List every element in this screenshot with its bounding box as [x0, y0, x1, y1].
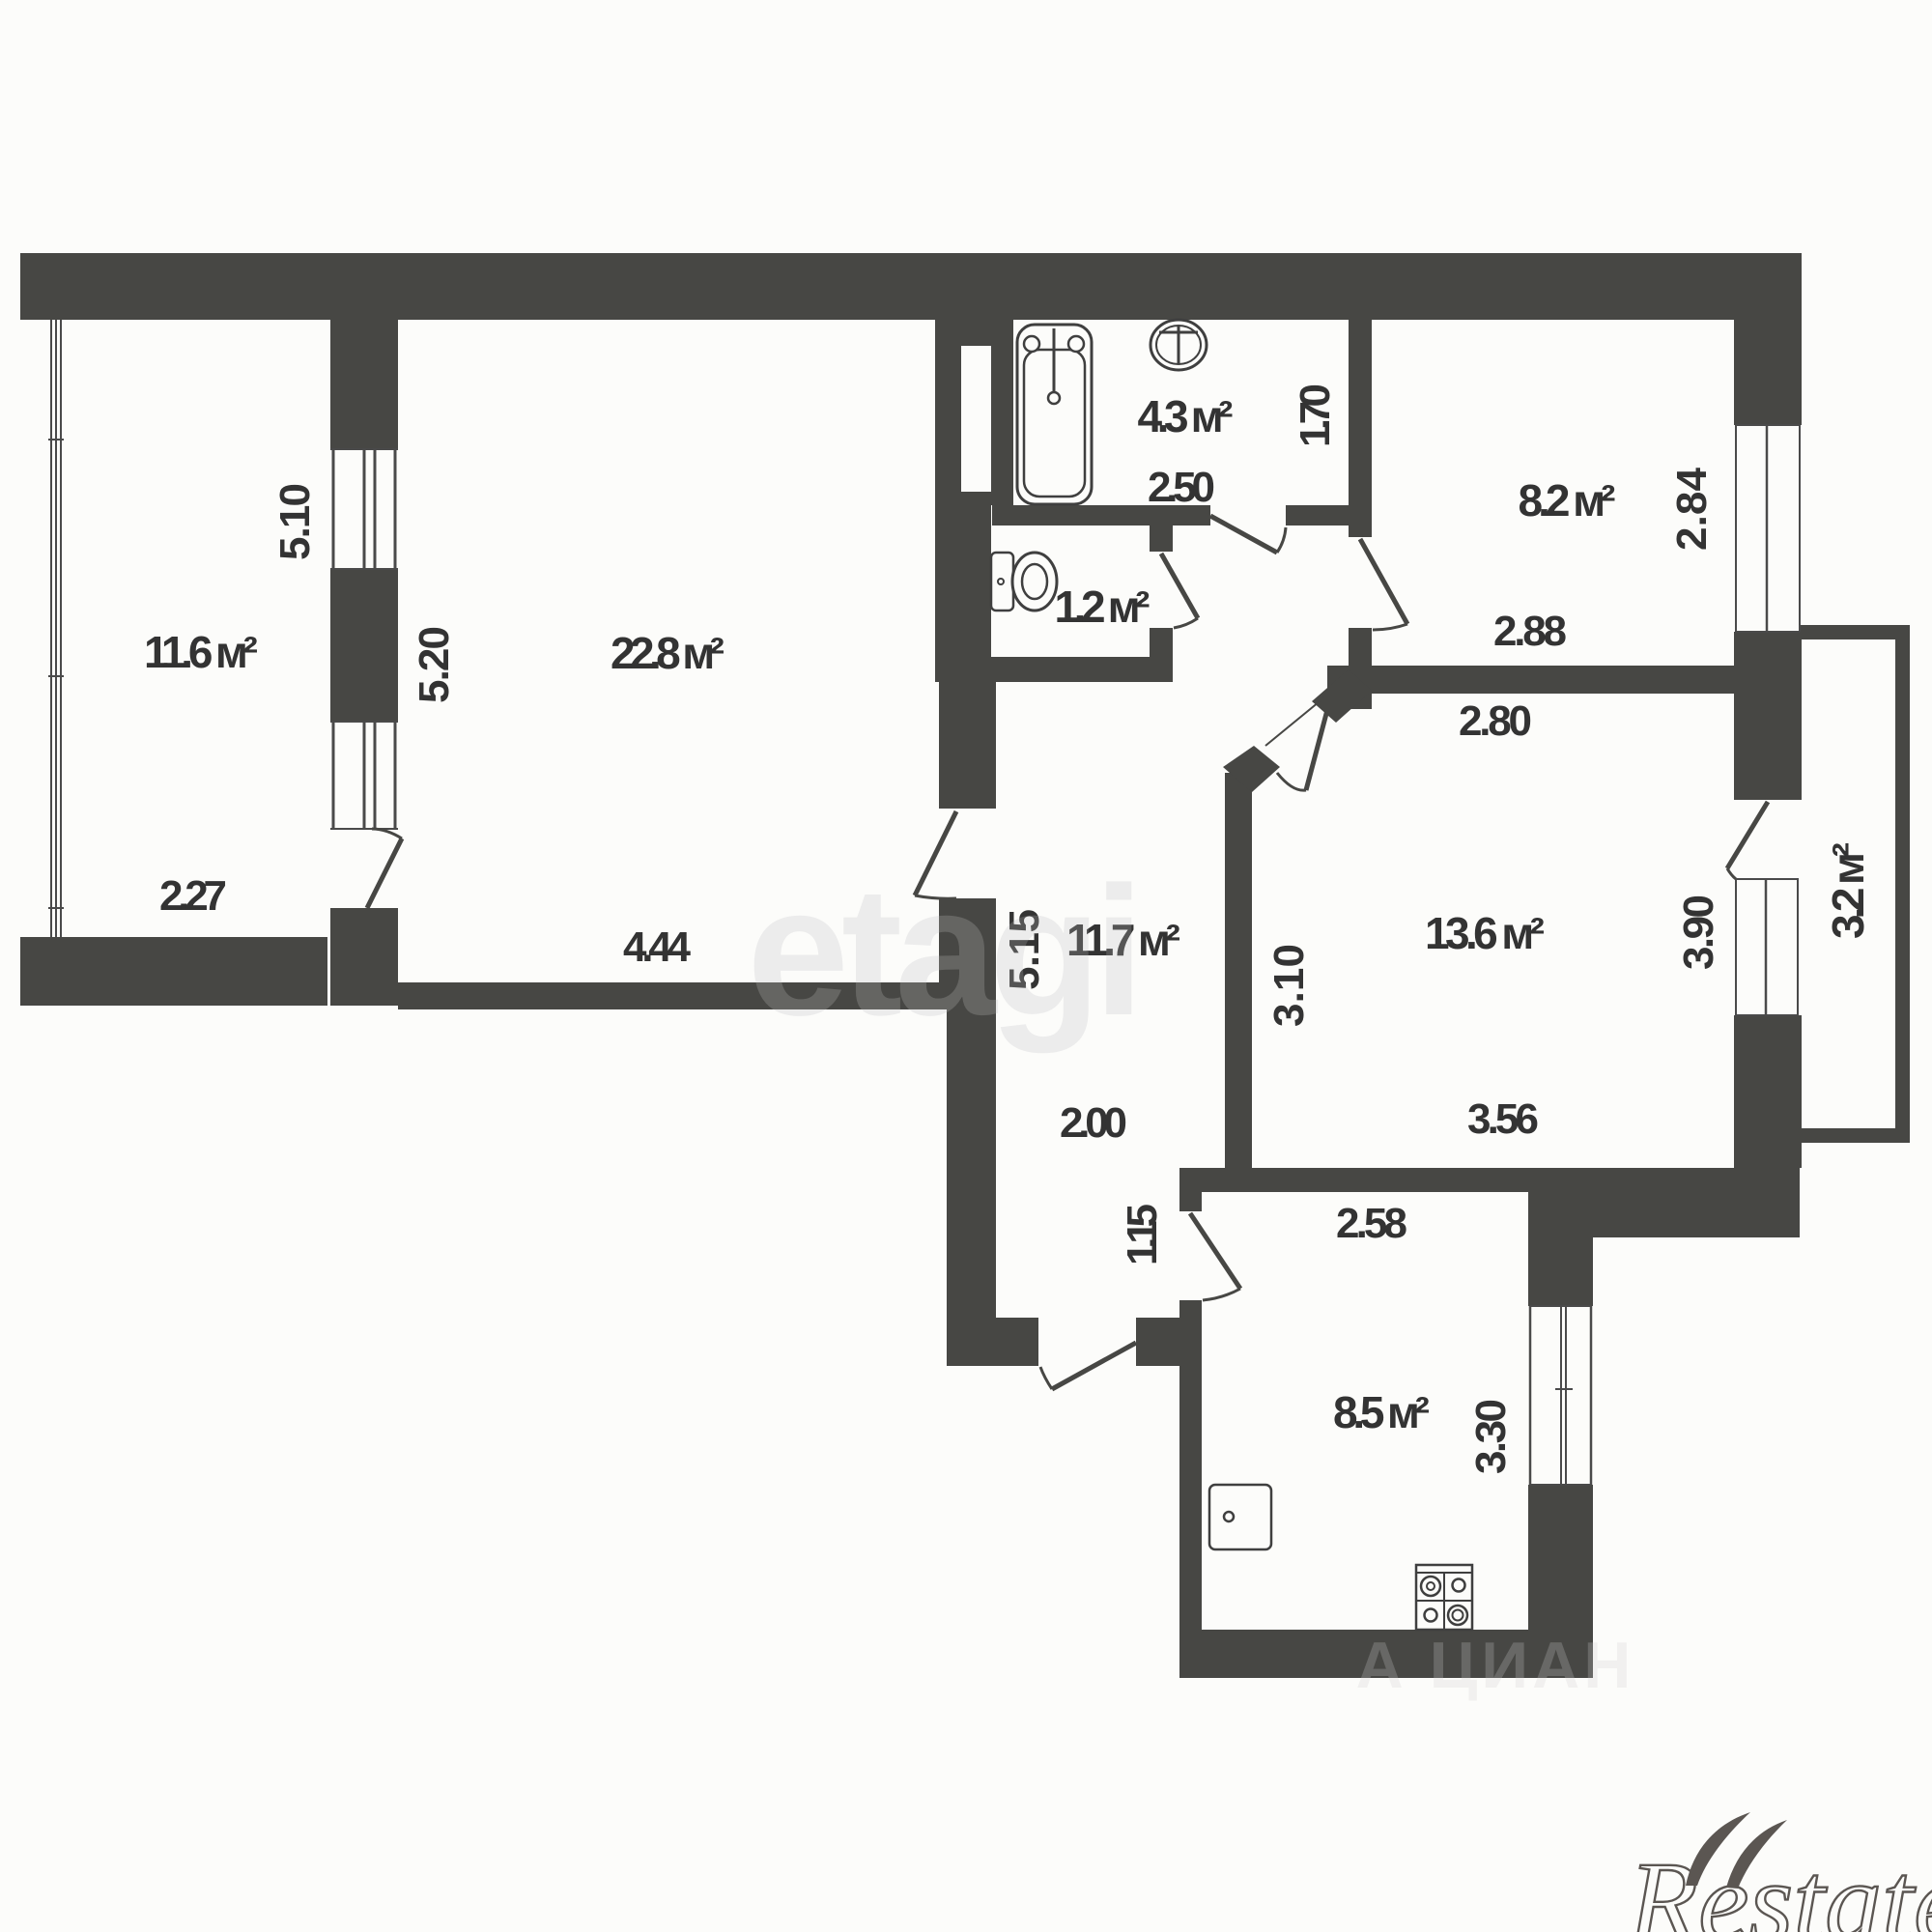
svg-text:А ЦИАН: А ЦИАН: [1356, 1629, 1635, 1702]
svg-text:5.10: 5.10: [271, 483, 319, 560]
svg-text:3.10: 3.10: [1265, 944, 1313, 1027]
svg-text:Restate: Restate: [1628, 1838, 1932, 1932]
svg-text:1.15: 1.15: [1119, 1204, 1166, 1265]
svg-text:2.88: 2.88: [1493, 608, 1567, 655]
svg-text:5.20: 5.20: [411, 626, 458, 703]
svg-text:2.58: 2.58: [1336, 1200, 1407, 1247]
svg-text:22.8 м²: 22.8 м²: [611, 628, 724, 678]
svg-text:3.2 м²: 3.2 м²: [1823, 842, 1873, 939]
svg-text:etagi: etagi: [747, 849, 1136, 1054]
svg-text:4.3 м²: 4.3 м²: [1138, 391, 1234, 441]
svg-text:1.2 м²: 1.2 м²: [1055, 582, 1151, 632]
svg-text:1.70: 1.70: [1292, 384, 1339, 447]
svg-text:8.5 м²: 8.5 м²: [1333, 1387, 1430, 1437]
svg-text:3.90: 3.90: [1675, 895, 1722, 970]
svg-text:3.56: 3.56: [1467, 1095, 1539, 1143]
svg-text:4.44: 4.44: [623, 923, 692, 971]
svg-text:8.2 м²: 8.2 м²: [1519, 475, 1616, 526]
svg-text:2.84: 2.84: [1668, 467, 1716, 551]
svg-text:11.6 м²: 11.6 м²: [144, 627, 258, 677]
svg-text:2.80: 2.80: [1459, 697, 1532, 745]
svg-text:2.27: 2.27: [159, 872, 227, 920]
svg-text:2.50: 2.50: [1148, 464, 1215, 511]
svg-text:3.30: 3.30: [1467, 1399, 1515, 1474]
svg-text:13.6 м²: 13.6 м²: [1425, 908, 1545, 958]
svg-text:2.00: 2.00: [1060, 1099, 1127, 1147]
